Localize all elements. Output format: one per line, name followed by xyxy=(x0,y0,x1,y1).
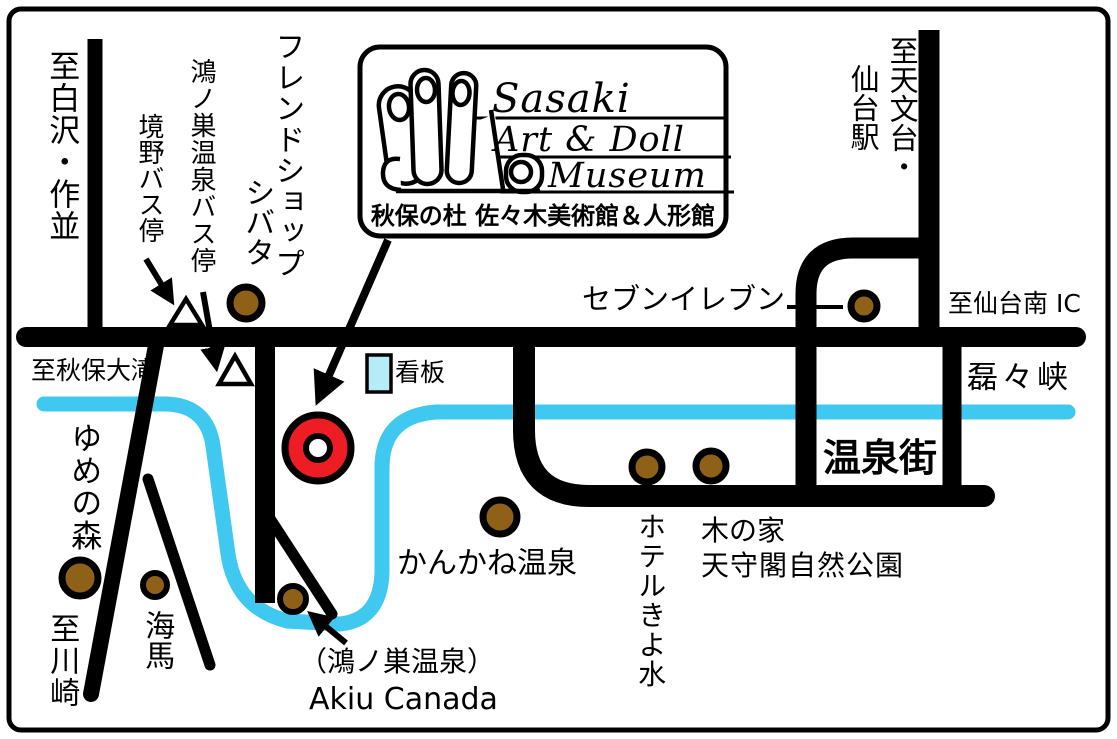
label-to-kawasaki: 至川崎 xyxy=(46,613,77,709)
label-to-observatory: 至天文台・ xyxy=(887,36,917,181)
label-rairaikyo: 磊々峡 xyxy=(967,362,1072,394)
label-akiu-canada: Akiu Canada xyxy=(309,684,498,715)
label-sakaino-bus-stop: 境野バス停 xyxy=(135,113,162,243)
marker-hotel-kiyomizu xyxy=(632,452,662,482)
bus-stop-triangle-sakaino xyxy=(170,299,202,325)
label-signboard: 看板 xyxy=(395,360,445,386)
marker-kinoie-park xyxy=(696,451,726,481)
logo-name-line3: Museum xyxy=(548,158,707,194)
access-map: Sasaki Art & Doll Museum 秋保の杜 佐々木美術館＆人形館… xyxy=(0,0,1117,739)
label-shibata: シバタ xyxy=(241,177,272,267)
label-yume-no-mori: ゆめの森 xyxy=(67,422,99,552)
marker-seven-eleven xyxy=(851,293,877,319)
label-onsen-town: 温泉街 xyxy=(823,439,937,479)
signboard-rect xyxy=(367,355,391,392)
marker-kankane-onsen xyxy=(483,500,517,534)
marker-akiu-canada xyxy=(280,586,306,612)
label-konosu-onsen-paren: （鴻ノ巣温泉） xyxy=(299,647,495,676)
label-to-shirasawa-sakunami: 至白沢・作並 xyxy=(45,50,77,242)
marker-yume-no-mori xyxy=(62,560,98,596)
label-ki-no-ie: 木の家 xyxy=(701,516,785,545)
label-hotel-kiyomizu: ホテルきよ水 xyxy=(636,512,665,689)
label-to-akiu-otaki: 至秋保大滝 xyxy=(31,358,156,384)
label-konosu-onsen-bus-stop: 鴻ノ巣温泉バス停 xyxy=(187,58,214,274)
label-kankane-onsen: かんかね温泉 xyxy=(397,548,577,579)
marker-kaiba xyxy=(143,573,167,597)
bus-stop-triangle-konosu xyxy=(219,356,251,384)
museum-marker xyxy=(285,415,351,481)
label-friend-shop: フレンドショップ xyxy=(271,31,302,279)
label-sendai-station: 仙台駅 xyxy=(848,64,878,151)
logo-name-line2: Art & Doll xyxy=(494,122,685,158)
label-seven-eleven: セブンイレブン xyxy=(582,284,785,314)
logo-name-line1: Sasaki xyxy=(492,79,631,121)
logo-subtitle: 秋保の杜 佐々木美術館＆人形館 xyxy=(366,204,720,229)
marker-friend-shop-shibata xyxy=(230,287,262,319)
label-tenshukaku-park: 天守閣自然公園 xyxy=(701,551,904,580)
label-kaiba: 海馬 xyxy=(141,610,172,670)
label-to-sendai-minami-ic: 至仙台南 IC xyxy=(948,291,1081,317)
sakaino-bus-stop-arrow xyxy=(146,259,171,300)
